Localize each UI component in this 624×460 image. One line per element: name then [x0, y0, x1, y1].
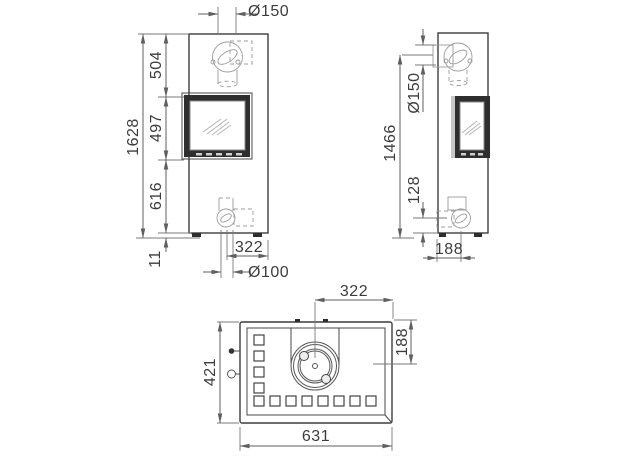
top-edge-tick-2	[323, 319, 328, 322]
top-edge-tick-1	[295, 319, 300, 322]
top-view: 322 188 421 631	[202, 283, 417, 451]
front-window	[182, 93, 252, 159]
top-flue-screw-1	[300, 352, 309, 361]
side-window-vents	[461, 153, 483, 156]
top-handle-knob	[229, 348, 235, 354]
front-dim-bottom-outlet: 322 Ø100	[203, 230, 289, 281]
top-handle-ring	[228, 370, 236, 378]
top-dim-depth: 421	[202, 322, 239, 423]
dim-top-flue-from-right: 322	[340, 283, 368, 300]
dim-side-outlet-height: 128	[406, 176, 423, 204]
dim-top-width: 631	[302, 428, 330, 445]
side-view: 1466 Ø150 128 188	[382, 29, 490, 262]
top-flue-screw-2	[322, 375, 331, 384]
dim-front-window-to-base: 616	[148, 182, 165, 210]
dim-side-outlet-depth: 188	[435, 241, 463, 258]
stove-dimension-drawing: Ø150 1628 504 497 616 11	[0, 0, 624, 460]
side-dim-outlet-depth: 188	[423, 231, 475, 262]
dim-front-window-height: 497	[148, 114, 165, 142]
side-foot-left	[439, 233, 446, 237]
dim-side-flue-height: 1466	[382, 124, 399, 162]
top-door-handle	[228, 348, 241, 378]
dim-top-depth: 421	[202, 358, 219, 386]
front-foot-left	[192, 233, 201, 237]
front-foot-right	[253, 233, 262, 237]
front-dim-top-flue: Ø150	[198, 3, 289, 33]
side-window-edge	[451, 96, 455, 158]
technical-drawing-page: Ø150 1628 504 497 616 11	[0, 0, 624, 460]
dim-front-outlet-offset: 322	[235, 239, 263, 256]
top-dim-width: 631	[240, 427, 392, 451]
dim-front-top-to-window: 504	[148, 51, 165, 79]
side-window	[451, 96, 490, 158]
side-foot-right	[474, 233, 482, 237]
dim-top-flue-from-front: 188	[394, 328, 411, 356]
dim-front-flue-diameter: Ø150	[248, 3, 289, 20]
front-view: Ø150 1628 504 497 616 11	[125, 3, 289, 281]
side-dim-flue-diameter: Ø150	[406, 29, 436, 114]
dim-side-flue-diameter: Ø150	[406, 72, 423, 113]
dim-front-foot-height: 11	[147, 250, 164, 268]
dim-front-outlet-diameter: Ø100	[248, 264, 289, 281]
dim-front-total-height: 1628	[125, 118, 142, 156]
front-dim-foot-height: 11	[147, 238, 166, 268]
